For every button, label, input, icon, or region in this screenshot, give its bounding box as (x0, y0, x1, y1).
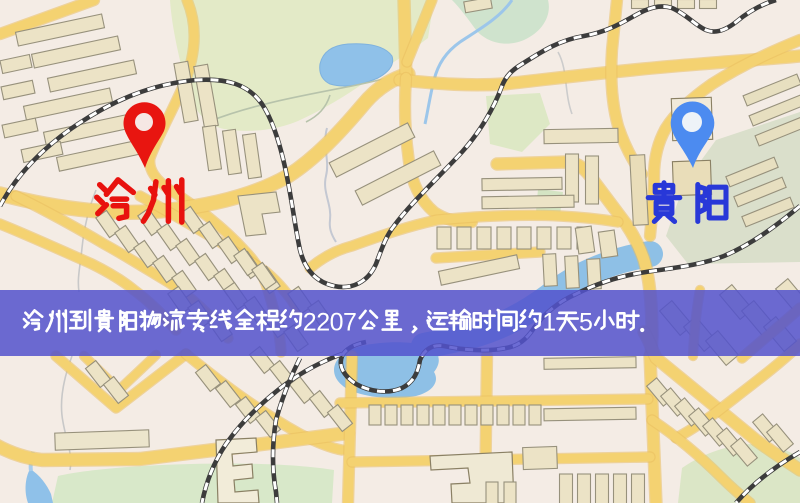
svg-text:1: 1 (542, 309, 556, 337)
svg-text:2: 2 (316, 309, 330, 337)
svg-text:2: 2 (303, 309, 317, 337)
svg-text:5: 5 (579, 309, 593, 337)
svg-text:7: 7 (343, 309, 357, 337)
svg-text:0: 0 (330, 309, 344, 337)
